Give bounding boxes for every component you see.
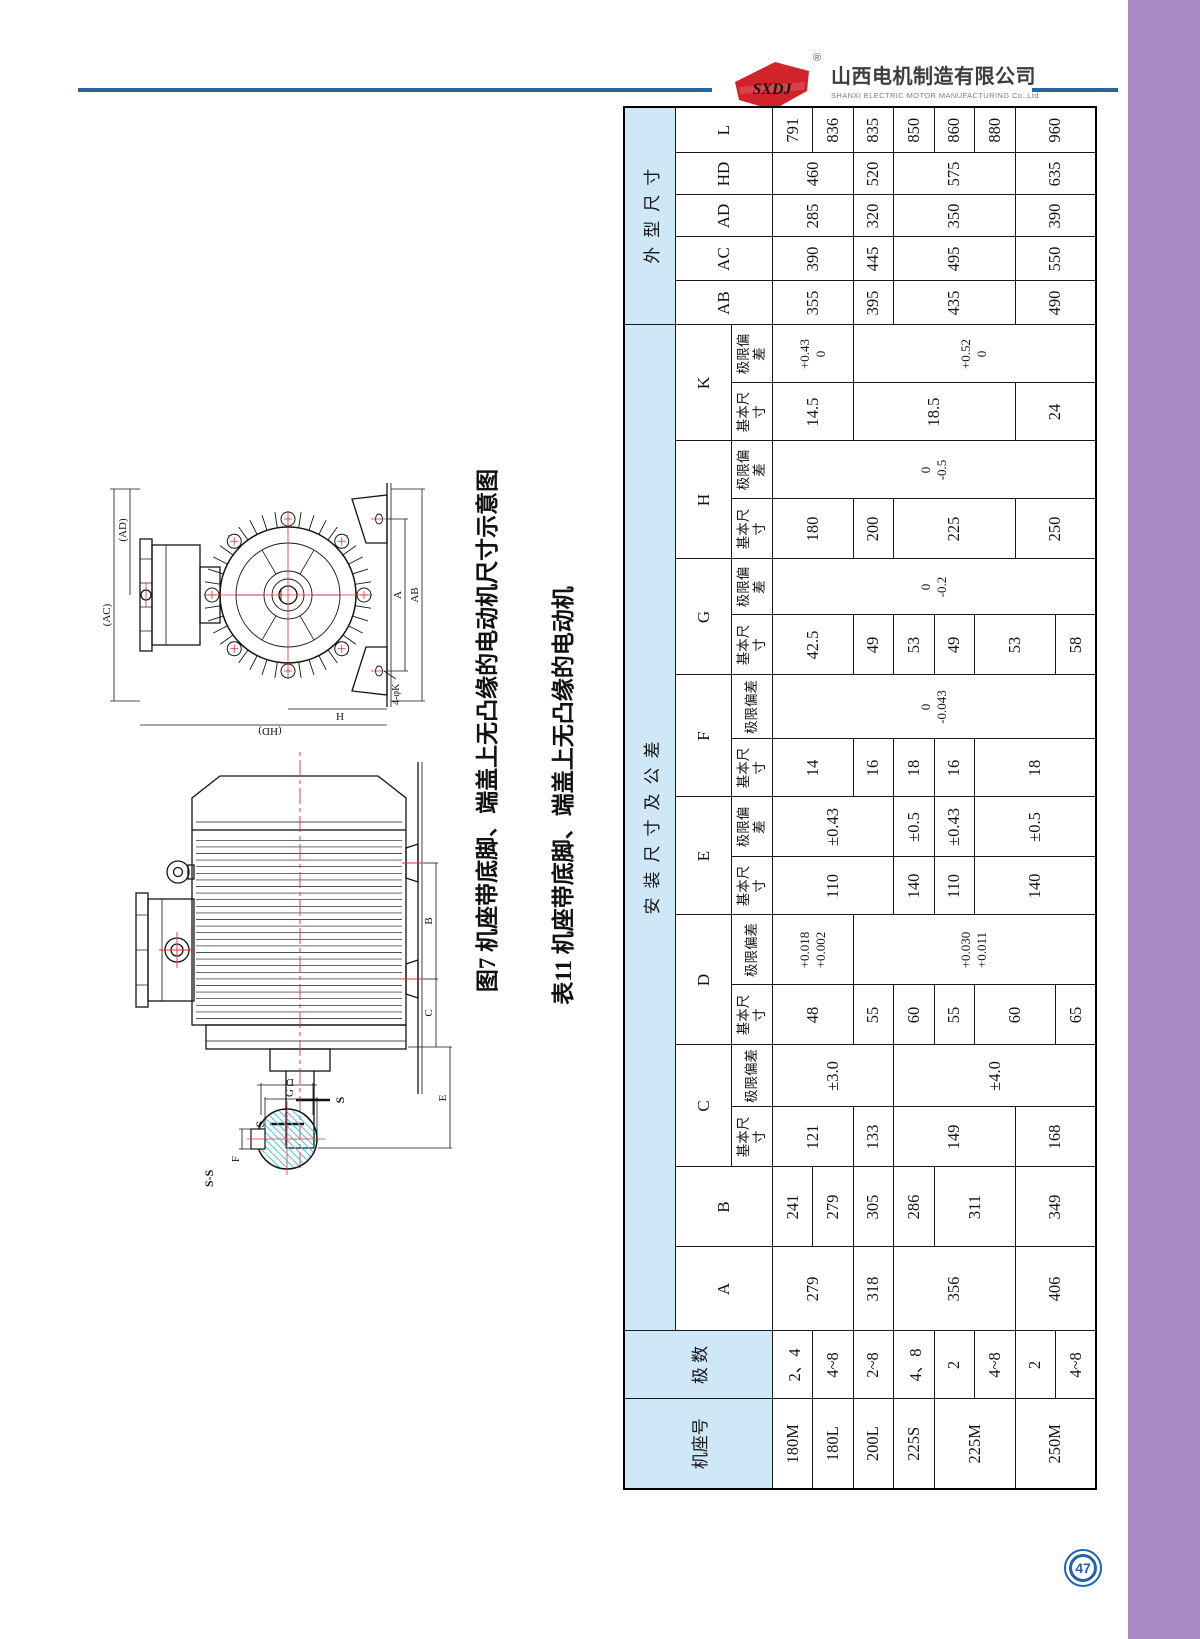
dim-label-f: F (230, 1156, 242, 1162)
table-header-cell: 极限偏差 (732, 325, 772, 383)
table-cell: 311 (934, 1167, 1015, 1247)
table-header-cell: D (676, 915, 732, 1045)
table-cell: 836 (813, 107, 853, 153)
table-cell: 880 (975, 107, 1015, 153)
table-cell: 49 (853, 615, 893, 675)
table-cell: 225M (934, 1399, 1015, 1489)
table-header-cell: G (676, 559, 732, 675)
table-header-cell: 极限偏差 (732, 797, 772, 857)
figure-front-view: (AC) (AD) (100, 455, 440, 735)
table-cell: 250M (1015, 1399, 1096, 1489)
dim-label-foot-holes: 4-φK (391, 683, 402, 705)
table-header-cell: 基本尺寸 (732, 383, 772, 441)
table-cell: ±0.43 (772, 797, 893, 857)
table-cell: 495 (894, 237, 1015, 281)
table-header-cell: AD (676, 195, 772, 237)
table-cell: +0.52 0 (853, 325, 1096, 383)
table-cell: 355 (772, 281, 853, 325)
table-cell: 133 (853, 1107, 893, 1167)
table-cell: 305 (853, 1167, 893, 1247)
table-cell: +0.43 0 (772, 325, 853, 383)
table-cell: 960 (1015, 107, 1096, 153)
catalog-page: SXDJ ® 山西电机制造有限公司 SHANXI ELECTRIC MOTOR … (0, 0, 1200, 1639)
table-cell: 18.5 (853, 383, 1015, 441)
table-header-cell: A (676, 1247, 772, 1331)
table-cell: 835 (853, 107, 893, 153)
table-cell: 406 (1015, 1247, 1096, 1331)
figure-section-view: S-S F G D (195, 1075, 345, 1195)
table-header-cell: 外型尺寸 (624, 107, 676, 325)
dim-label-d: D (286, 1076, 294, 1088)
table-cell: 241 (772, 1167, 812, 1247)
dimension-table-block: 机座号极 数安装尺寸及公差外型尺寸ABCDEFGHKABACADHDL基本尺寸极… (623, 125, 1097, 1490)
table-cell: 575 (894, 153, 1015, 195)
table-header-cell: 极限偏差 (732, 675, 772, 739)
table-cell: 65 (1056, 985, 1097, 1045)
table-cell: 520 (853, 153, 893, 195)
table-cell: 550 (1015, 237, 1096, 281)
table-cell: 349 (1015, 1167, 1096, 1247)
table-row: 180M2、4279241121±3.048+0.018 +0.002110±0… (772, 107, 812, 1489)
table-cell: 4~8 (1056, 1331, 1097, 1399)
table-header-cell: 极限偏差 (732, 441, 772, 499)
dim-label-ab: AB (409, 587, 421, 602)
dim-label-c: C (423, 1009, 435, 1016)
table-cell: 55 (853, 985, 893, 1045)
table-cell: 279 (772, 1247, 853, 1331)
table-cell: 58 (1056, 615, 1097, 675)
table-cell: 121 (772, 1107, 853, 1167)
table-header-cell: F (676, 675, 732, 797)
table-cell: 14.5 (772, 383, 853, 441)
table-cell: 55 (934, 985, 974, 1045)
table-cell: 180L (813, 1399, 853, 1489)
table-cell: 390 (1015, 195, 1096, 237)
table-cell: 168 (1015, 1107, 1096, 1167)
table-header-cell: E (676, 797, 732, 915)
section-title: S-S (202, 1169, 216, 1187)
table-cell: 356 (894, 1247, 1015, 1331)
sxdj-logo-icon: SXDJ (733, 60, 811, 110)
table-header-cell: L (676, 107, 772, 153)
table-cell: 2、4 (772, 1331, 812, 1399)
table-header-cell: 极限偏差 (732, 1045, 772, 1107)
table-cell: 180M (772, 1399, 812, 1489)
table-cell: 149 (894, 1107, 1015, 1167)
table-row: ABCDEFGHKABACADHDL (676, 107, 732, 1489)
table-cell: 2~8 (853, 1331, 893, 1399)
dim-label-ac: (AC) (101, 603, 113, 626)
table-cell: 279 (813, 1167, 853, 1247)
table-cell: 350 (894, 195, 1015, 237)
table-header-cell: AC (676, 237, 772, 281)
purple-sidebar (1128, 0, 1200, 1639)
table-cell: 110 (934, 857, 974, 915)
figure-caption: 图7 机座带底脚、端盖上无凸缘的电动机尺寸示意图 (468, 448, 508, 1013)
company-name-en: SHANXI ELECTRIC MOTOR MANUFACTURING Co.,… (831, 91, 1041, 100)
table-cell: 435 (894, 281, 1015, 325)
table-cell: 2 (934, 1331, 974, 1399)
table-cell: 860 (934, 107, 974, 153)
table-cell: 395 (853, 281, 893, 325)
table-cell: 140 (975, 857, 1096, 915)
table-cell: ±0.5 (975, 797, 1096, 857)
logo-text: SXDJ (752, 81, 792, 98)
table-cell: 0 -0.043 (772, 675, 1096, 739)
table-header-cell: 基本尺寸 (732, 615, 772, 675)
table-cell: 18 (975, 739, 1096, 797)
page-number-badge: 47 (1064, 1549, 1102, 1587)
table-cell: 53 (975, 615, 1056, 675)
table-header-cell: 安装尺寸及公差 (624, 325, 676, 1331)
table-header-cell: B (676, 1167, 772, 1247)
table-cell: 250 (1015, 499, 1096, 559)
table-header-cell: 基本尺寸 (732, 499, 772, 559)
table-cell: 318 (853, 1247, 893, 1331)
center-lines (146, 511, 387, 679)
table-cell: ±3.0 (772, 1045, 893, 1107)
table-cell: 490 (1015, 281, 1096, 325)
dim-label-b: B (423, 917, 435, 924)
table-cell: 49 (934, 615, 974, 675)
table-header-cell: 基本尺寸 (732, 857, 772, 915)
table-cell: 390 (772, 237, 853, 281)
table-cell: 60 (975, 985, 1056, 1045)
company-logo: SXDJ ® 山西电机制造有限公司 SHANXI ELECTRIC MOTOR … (733, 52, 1033, 114)
table-cell: 0 -0.2 (772, 559, 1096, 615)
table-cell: 42.5 (772, 615, 853, 675)
table-cell: 110 (772, 857, 893, 915)
front-view-drawing: (AC) (AD) (100, 455, 440, 735)
table-header-cell: 基本尺寸 (732, 985, 772, 1045)
dim-label-ad: (AD) (117, 518, 129, 542)
table-cell: 4~8 (975, 1331, 1015, 1399)
table-cell: 18 (894, 739, 934, 797)
table-cell: 286 (894, 1167, 934, 1247)
table-row: 225S4、8356286149±4.060140±0.518532254354… (894, 107, 934, 1489)
table-cell: 24 (1015, 383, 1096, 441)
table-header-cell: AB (676, 281, 772, 325)
table-cell: 635 (1015, 153, 1096, 195)
table-cell: 285 (772, 195, 853, 237)
table-header-cell: K (676, 325, 732, 441)
table-cell: +0.030 +0.011 (853, 915, 1096, 985)
table-cell: 16 (853, 739, 893, 797)
dim-label-h: H (336, 710, 344, 722)
table-cell: 0 -0.5 (772, 441, 1096, 499)
header-divider-left (78, 88, 712, 92)
table-cell: 140 (894, 857, 934, 915)
figure-caption-block: 图7 机座带底脚、端盖上无凸缘的电动机尺寸示意图 (468, 448, 508, 1013)
table-header-cell: 极 数 (624, 1331, 772, 1399)
table-cell: 16 (934, 739, 974, 797)
table-cell: ±4.0 (894, 1045, 1096, 1107)
table-cell: 225 (894, 499, 1015, 559)
table-cell: 2 (1015, 1331, 1055, 1399)
table-cell: 4、8 (894, 1331, 934, 1399)
table-header-cell: 机座号 (624, 1399, 772, 1489)
table-header-cell: HD (676, 153, 772, 195)
side-fins (196, 840, 402, 1018)
section-view-drawing: S-S F G D (195, 1075, 345, 1195)
table-cell: 200 (853, 499, 893, 559)
registered-trademark: ® (813, 52, 821, 64)
table-cell: 60 (894, 985, 934, 1045)
table-cell: 48 (772, 985, 853, 1045)
dim-label-a: A (392, 591, 404, 599)
company-name-cn: 山西电机制造有限公司 (831, 60, 1041, 89)
dim-label-e: E (437, 1094, 449, 1101)
table-cell: ±0.5 (894, 797, 934, 857)
table-cell: 445 (853, 237, 893, 281)
table-cell: 850 (894, 107, 934, 153)
dim-label-g: G (284, 1089, 296, 1097)
table-cell: ±0.43 (934, 797, 974, 857)
table-header-cell: 基本尺寸 (732, 1107, 772, 1167)
table-cell: 53 (894, 615, 934, 675)
table-cell: 4~8 (813, 1331, 853, 1399)
table-cell: 200L (853, 1399, 893, 1489)
table-header-cell: 极限偏差 (732, 559, 772, 615)
table-cell: 460 (772, 153, 853, 195)
table-header-cell: 基本尺寸 (732, 739, 772, 797)
table-cell: 791 (772, 107, 812, 153)
table-row: 机座号极 数安装尺寸及公差外型尺寸 (624, 107, 676, 1489)
header-divider-right (1032, 88, 1118, 92)
table-cell: 180 (772, 499, 853, 559)
table-header-cell: H (676, 441, 732, 559)
table-title-block: 表11 机座带底脚、端盖上无凸缘的电动机 (543, 583, 585, 1008)
dimension-table: 机座号极 数安装尺寸及公差外型尺寸ABCDEFGHKABACADHDL基本尺寸极… (623, 106, 1097, 1490)
table-cell: +0.018 +0.002 (772, 915, 853, 985)
table-header-cell: C (676, 1045, 732, 1167)
table-cell: 320 (853, 195, 893, 237)
dim-label-hd: (HD) (258, 725, 282, 735)
page-number: 47 (1069, 1554, 1097, 1582)
table-title: 表11 机座带底脚、端盖上无凸缘的电动机 (543, 583, 585, 1008)
table-header-cell: 极限偏差 (732, 915, 772, 985)
table-cell: 225S (894, 1399, 934, 1489)
table-cell: 14 (772, 739, 853, 797)
